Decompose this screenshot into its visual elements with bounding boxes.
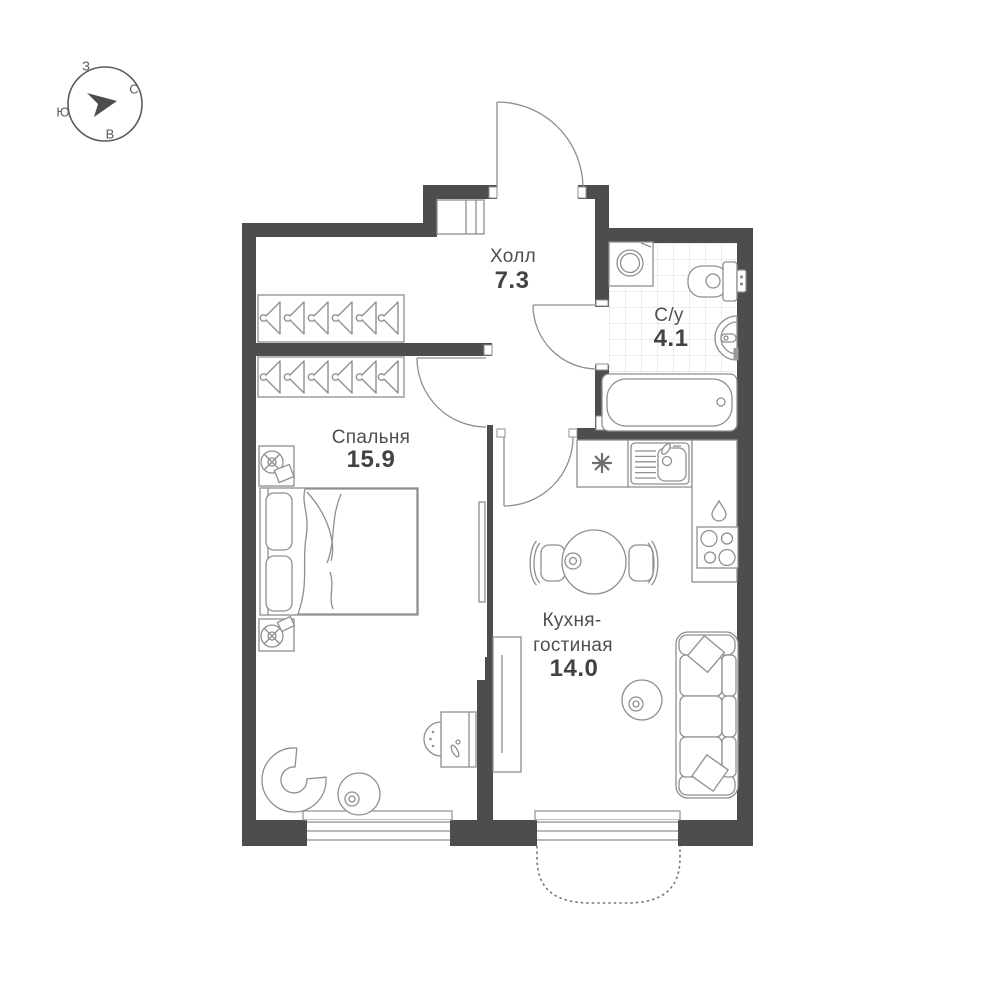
kitchen-living-area-label: 14.0 [550, 655, 599, 683]
sofa-seat [680, 696, 722, 737]
wall-hall-top-left [437, 185, 497, 199]
nightstand-top [259, 446, 294, 486]
kitchen-living-name-line2: гостиная [533, 635, 613, 657]
floorplan-drawing [0, 0, 1000, 1000]
wall-divider-thin [487, 425, 493, 680]
wall-left-outer [242, 223, 256, 845]
bedroom-side-table [338, 773, 380, 815]
coffee-table [622, 680, 662, 720]
bathroom-name-label: С/у [654, 305, 683, 327]
dining-chair-left [530, 541, 565, 585]
pillow [266, 556, 292, 611]
sofa-back-cushion [722, 655, 736, 696]
bedroom-door [417, 358, 486, 427]
dining-table [530, 530, 658, 594]
wall-right-outer [737, 228, 753, 846]
toilet [688, 262, 746, 301]
bedroom-window-sill [303, 811, 452, 820]
kitchen-sink [631, 442, 689, 484]
compass-north-label: С [129, 82, 138, 97]
nightstand-bottom [259, 617, 294, 651]
wall-bottom-left [242, 820, 307, 846]
compass-south-label: Ю [56, 105, 69, 120]
vent-asterisk-icon [592, 453, 612, 473]
living-room-tv [485, 657, 492, 751]
bedroom-furniture [258, 357, 485, 815]
kitchen-window-sill [535, 811, 680, 820]
sofa-back-cushion [722, 696, 736, 737]
bathtub [602, 374, 737, 431]
washing-machine [609, 242, 653, 286]
dining-chair-right [629, 541, 658, 585]
blanket [298, 489, 417, 614]
wall-bathroom-top [609, 228, 753, 243]
compass-needle-icon [87, 93, 117, 117]
armchair [262, 748, 326, 812]
compass-east-label: В [106, 127, 115, 142]
hall-name-label: Холл [490, 246, 536, 268]
hall-furniture [258, 200, 484, 342]
bed [260, 488, 418, 615]
entry-cabinet [437, 200, 484, 234]
wall-entry-step [423, 185, 437, 237]
wall-wardrobe [256, 343, 492, 356]
desk [441, 712, 476, 767]
kitchen-furniture [485, 440, 738, 798]
wall-bedroom-top [242, 223, 437, 237]
hall-wardrobe [258, 295, 404, 342]
kitchen-window-opening [537, 820, 678, 846]
hall-area-label: 7.3 [495, 267, 530, 295]
bedroom-window-opening [307, 820, 450, 846]
bathroom-area-label: 4.1 [654, 325, 689, 353]
sofa [676, 632, 738, 798]
desk-chair [424, 722, 441, 756]
bathroom-door [533, 305, 597, 369]
kitchen-door [504, 437, 573, 506]
bedroom-area-label: 15.9 [347, 446, 396, 474]
compass-west-label: З [82, 59, 90, 74]
stove-4-burner-icon [697, 527, 738, 568]
balcony-outline [537, 846, 680, 903]
bedroom-wardrobe [258, 357, 404, 397]
wall-bottom-middle [450, 820, 537, 846]
pillow [266, 493, 292, 550]
floorplan-page: З С Ю В Холл 7.3 С/у 4.1 Спальня 15.9 Ку… [0, 0, 1000, 1000]
wall-bottom-right [678, 820, 753, 846]
bedroom-tv [479, 502, 485, 602]
door-frames [484, 187, 608, 437]
wall-hall-bath-upper [595, 185, 609, 307]
doors [417, 102, 597, 506]
entry-door [497, 102, 583, 188]
kitchen-living-name-line1: Кухня- [543, 610, 602, 632]
